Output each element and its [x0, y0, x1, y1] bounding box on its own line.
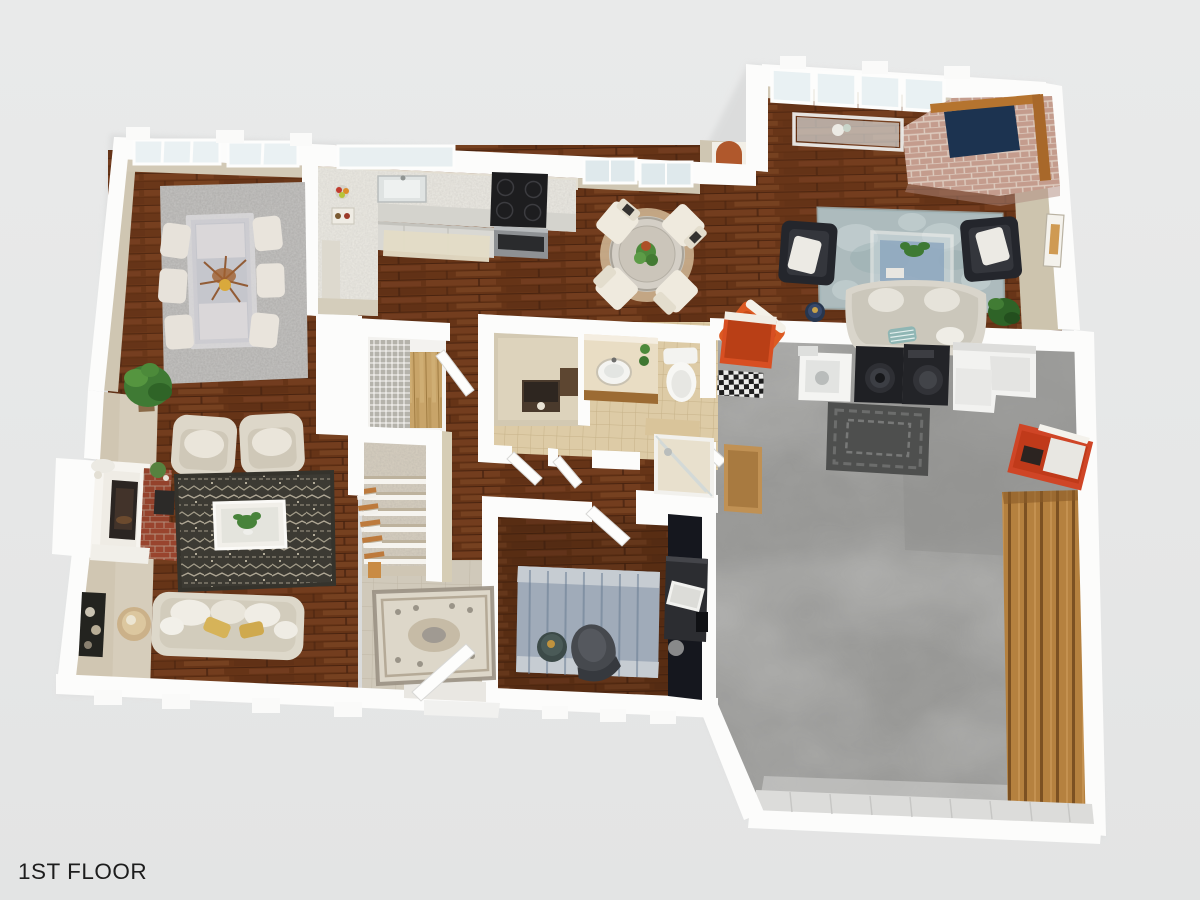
- svg-text:1ST FLOOR: 1ST FLOOR: [18, 859, 147, 884]
